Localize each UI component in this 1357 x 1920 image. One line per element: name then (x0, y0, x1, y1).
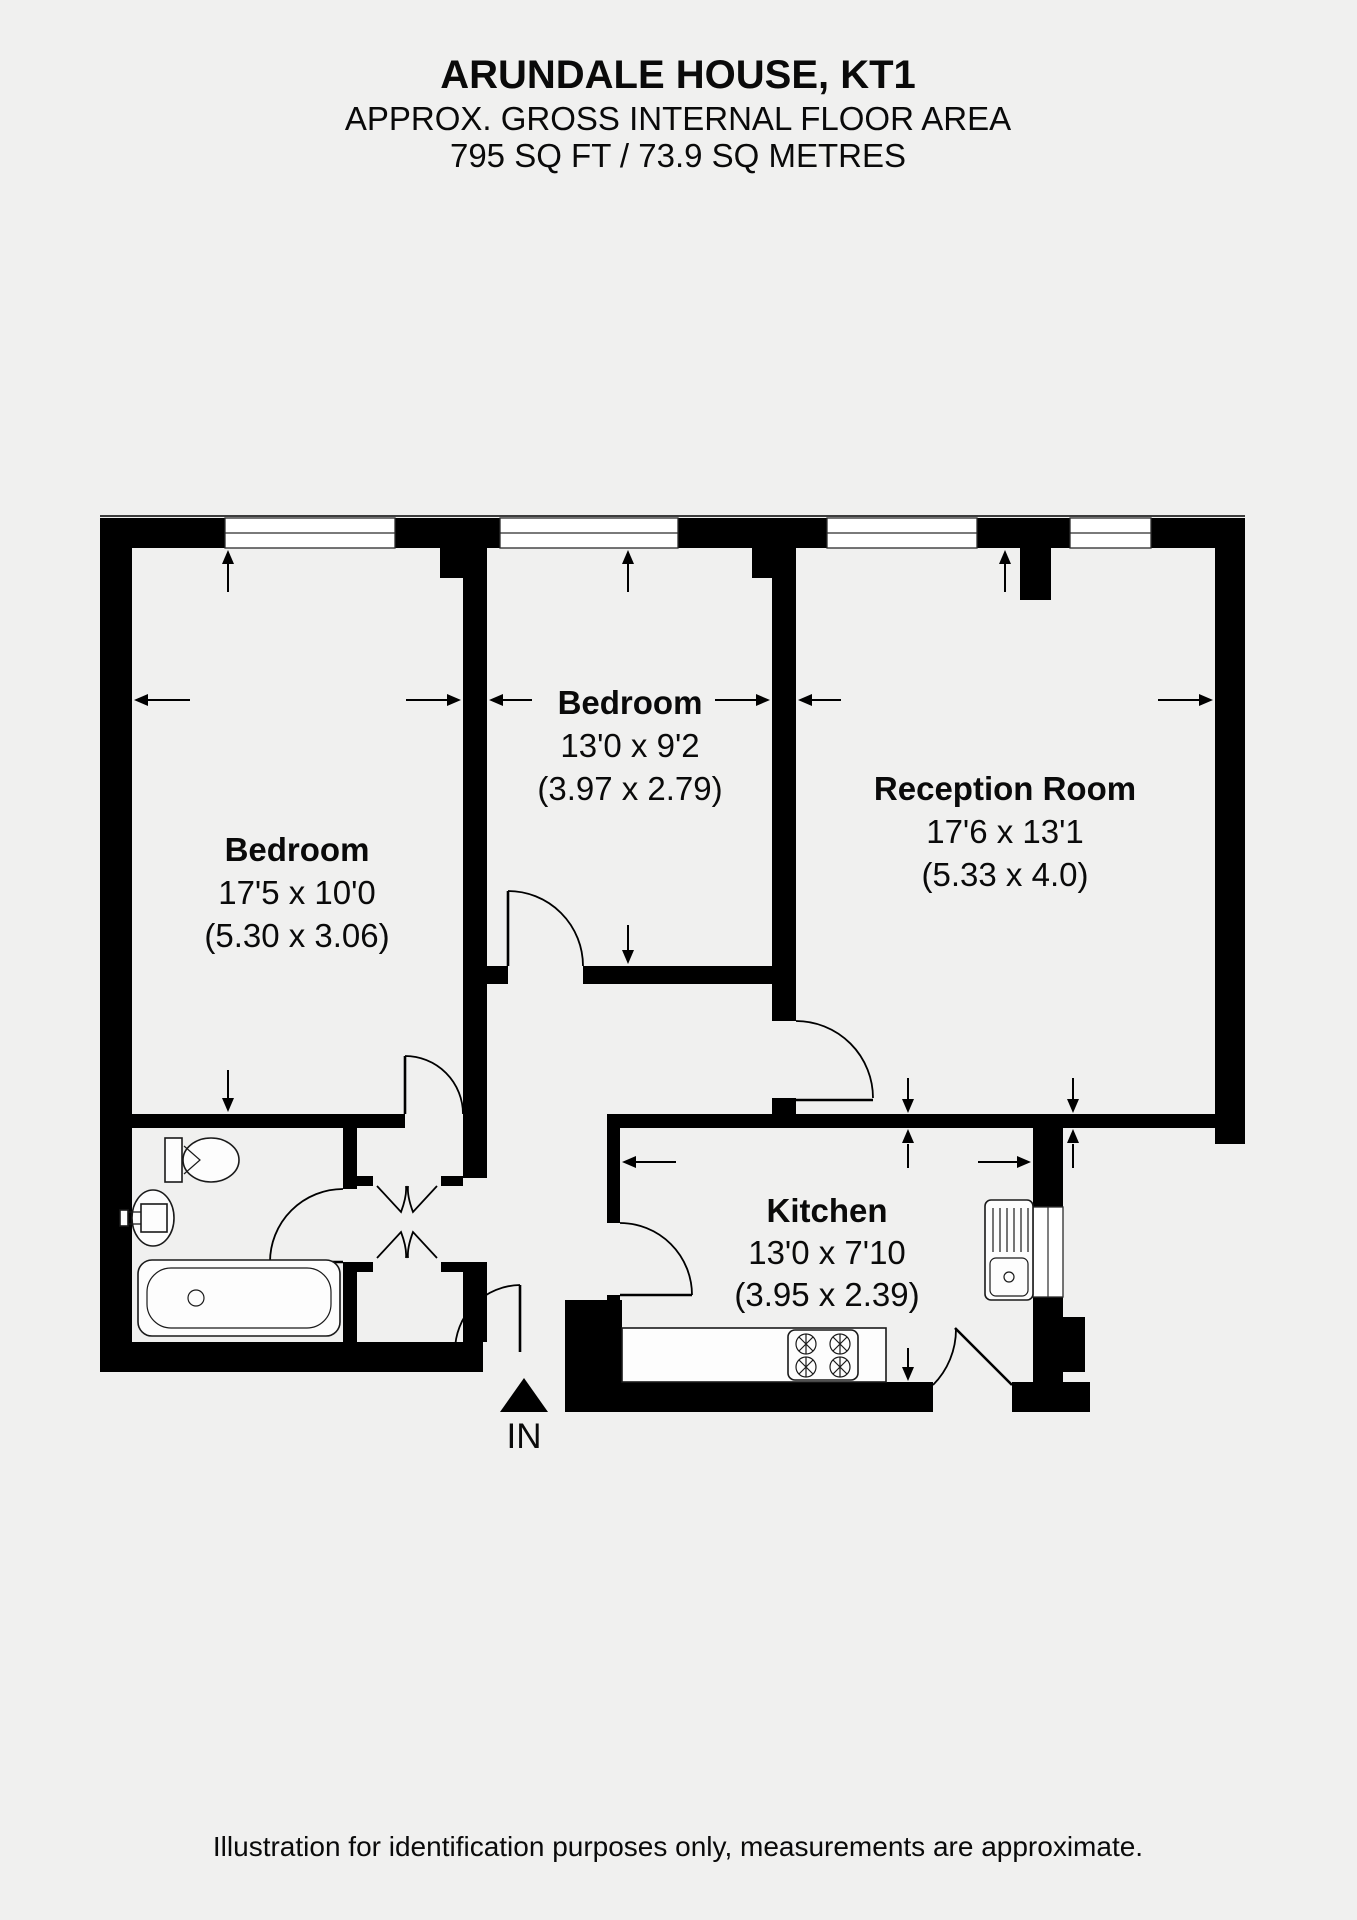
room-dims-metric: (3.97 x 2.79) (537, 770, 722, 807)
wall-bed2-bottom1 (487, 966, 508, 984)
arrow-up-icon (999, 550, 1011, 592)
toilet-icon (165, 1138, 239, 1182)
arrow-left-icon (489, 694, 532, 706)
wall-kitchen-right-notch (1063, 1317, 1085, 1372)
room-bedroom1: Bedroom 17'5 x 10'0 (5.30 x 3.06) (204, 831, 389, 954)
room-dims-metric: (5.30 x 3.06) (204, 917, 389, 954)
floor-plan: ARUNDALE HOUSE, KT1 APPROX. GROSS INTERN… (0, 0, 1357, 1920)
arrow-left-icon (798, 694, 841, 706)
wall-kitchen-left-upper (607, 1128, 620, 1223)
floor-area: 795 SQ FT / 73.9 SQ METRES (450, 137, 906, 174)
wall-top-seg2 (395, 518, 500, 548)
closet-jamb2 (441, 1176, 463, 1186)
wall-band-left (132, 1114, 405, 1128)
bifold-closet-top (377, 1186, 437, 1212)
window-bedroom2 (500, 518, 678, 548)
room-dims-imperial: 17'5 x 10'0 (218, 874, 376, 911)
arrow-up-icon (622, 550, 634, 592)
room-reception: Reception Room 17'6 x 13'1 (5.33 x 4.0) (874, 770, 1136, 893)
wall-stub3 (1020, 548, 1051, 600)
arrow-up-icon (1067, 1129, 1079, 1168)
door-bedroom1 (405, 1056, 463, 1114)
room-dims-imperial: 13'0 x 9'2 (560, 727, 699, 764)
room-bedroom2: Bedroom 13'0 x 9'2 (3.97 x 2.79) (537, 684, 722, 807)
door-bathroom (270, 1189, 343, 1262)
room-dims-imperial: 17'6 x 13'1 (926, 813, 1084, 850)
window-kitchen (1033, 1207, 1063, 1297)
closet-jamb3 (351, 1262, 373, 1272)
wall-divider1-upper (463, 548, 487, 1178)
wall-right (1215, 518, 1245, 1128)
arrow-right-icon (978, 1156, 1031, 1168)
door-reception (796, 1021, 873, 1100)
room-dims-imperial: 13'0 x 7'10 (748, 1234, 906, 1271)
window-reception1 (827, 518, 977, 548)
wall-divider1-lower (463, 1262, 487, 1342)
bathroom-fixtures (120, 1138, 340, 1336)
arrow-up-icon (902, 1129, 914, 1168)
wall-left (100, 518, 132, 1372)
door-kitchen-rear (933, 1328, 1012, 1385)
arrow-up-icon (222, 550, 234, 592)
wall-divider2 (772, 548, 796, 1021)
arrow-left-icon (134, 694, 190, 706)
arrow-right-icon (715, 694, 770, 706)
arrow-down-icon (902, 1348, 914, 1381)
arrow-down-icon (222, 1070, 234, 1112)
wall-bathroom-right-lower (343, 1262, 357, 1342)
room-name: Reception Room (874, 770, 1136, 807)
entrance-marker: IN (500, 1378, 548, 1456)
wall-kitchen-bottom1 (622, 1382, 933, 1412)
wall-kitchen-right-lower (1033, 1297, 1063, 1412)
arrow-right-icon (1158, 694, 1213, 706)
arrow-left-icon (622, 1156, 676, 1168)
bifold-closet-bottom (377, 1232, 437, 1258)
floorplan-page: ARUNDALE HOUSE, KT1 APPROX. GROSS INTERN… (0, 0, 1357, 1920)
wall-kitchen-left-lower (607, 1295, 620, 1342)
door-kitchen (620, 1223, 692, 1295)
kitchen-sink-icon (985, 1200, 1033, 1300)
wall-kitchen-right-upper (1033, 1128, 1063, 1207)
wall-band-right (607, 1114, 1245, 1128)
room-dims-metric: (5.33 x 4.0) (922, 856, 1089, 893)
disclaimer: Illustration for identification purposes… (213, 1831, 1143, 1862)
wall-top-seg1 (100, 518, 225, 548)
entrance-label: IN (507, 1417, 542, 1456)
wall-top-seg3 (678, 518, 827, 548)
entrance-arrow-icon (500, 1378, 548, 1412)
room-kitchen: Kitchen 13'0 x 7'10 (3.95 x 2.39) (734, 1192, 919, 1313)
window-reception2 (1070, 518, 1151, 548)
arrow-down-icon (622, 925, 634, 964)
arrow-down-icon (1067, 1078, 1079, 1113)
arrow-down-icon (902, 1078, 914, 1113)
wall-bed2-bottom2 (583, 966, 772, 984)
wall-right-step (1215, 1128, 1245, 1144)
room-name: Bedroom (558, 684, 703, 721)
window-bedroom1 (225, 518, 395, 548)
door-bedroom2 (508, 891, 583, 966)
closet-jamb4 (441, 1262, 463, 1272)
stove-icon (788, 1330, 858, 1380)
page-subtitle: APPROX. GROSS INTERNAL FLOOR AREA (345, 100, 1011, 137)
closet-jamb1 (351, 1176, 373, 1186)
room-name: Kitchen (766, 1192, 887, 1229)
page-title: ARUNDALE HOUSE, KT1 (440, 53, 916, 97)
room-dims-metric: (3.95 x 2.39) (734, 1276, 919, 1313)
bathtub-icon (138, 1260, 340, 1336)
room-name: Bedroom (225, 831, 370, 868)
wall-top-seg4 (977, 518, 1070, 548)
wall-bottom-left (100, 1342, 483, 1372)
arrow-right-icon (406, 694, 461, 706)
